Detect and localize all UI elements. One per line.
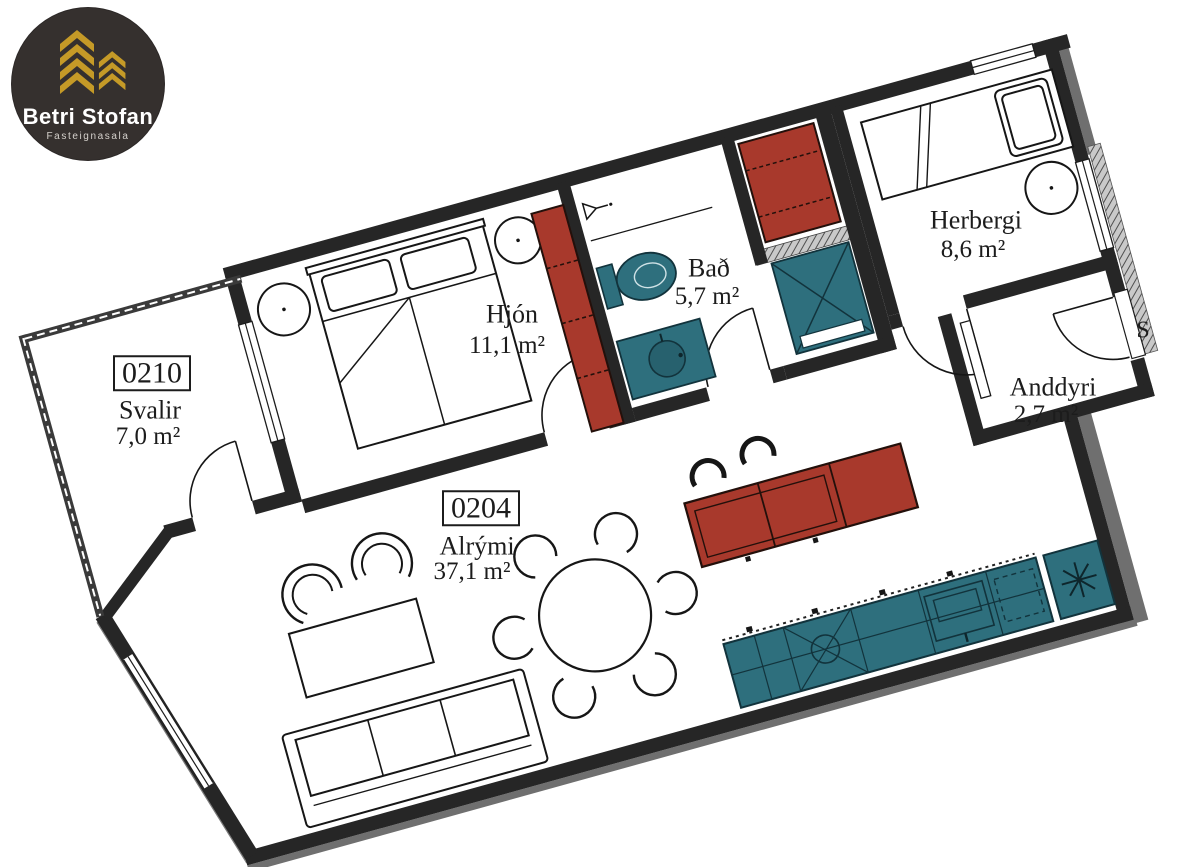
- window-herbergi-top: [971, 44, 1036, 75]
- room-area-herbergi: 8,6 m²: [941, 237, 1005, 263]
- dining-table: [526, 546, 664, 684]
- stairwell-partial-text: S: [1136, 318, 1149, 343]
- window-hjon-left: [239, 321, 285, 442]
- bar-stool: [738, 435, 775, 464]
- dining-chair: [549, 677, 599, 722]
- armchair: [350, 532, 413, 581]
- room-label-svalir: Svalir: [119, 396, 181, 423]
- rotated-plan: [16, 33, 1190, 867]
- unit-label-0210: 0210: [113, 355, 191, 391]
- brand-tagline: Fasteignasala: [46, 131, 129, 142]
- nightstand: [1019, 156, 1083, 220]
- room-area-hjon: 11,1 m²: [469, 333, 545, 359]
- dining-chair: [630, 649, 685, 704]
- room-area-alrymi: 37,1 m²: [434, 559, 511, 585]
- bar-stool: [688, 457, 725, 486]
- brand-name: Betri Stofan: [23, 104, 154, 130]
- window-living-chamfer: [123, 642, 214, 801]
- door-arc-balcony: [176, 441, 252, 517]
- shower-rail-line: [591, 207, 712, 241]
- armchair: [270, 552, 345, 626]
- room-area-svalir: 7,0 m²: [116, 424, 180, 450]
- dining-chair: [656, 567, 702, 617]
- dining-chair: [489, 614, 535, 664]
- room-label-alrymi: Alrými: [439, 532, 514, 559]
- drain-arrow-icon: [583, 196, 615, 219]
- room-label-bad: Bað: [688, 254, 730, 281]
- room-area-anddyri: 2,7 m²: [1014, 402, 1078, 428]
- dining-chair: [592, 509, 642, 554]
- room-label-hjon: Hjón: [486, 300, 538, 327]
- room-area-bad: 5,7 m²: [675, 284, 739, 310]
- agency-logo: Betri Stofan Fasteignasala: [12, 8, 164, 160]
- floorplan-page: { "brand": { "name": "Betri Stofan", "ta…: [0, 0, 1190, 867]
- sink-vanity: [617, 319, 716, 400]
- logo-chevrons-icon: [46, 26, 130, 102]
- room-label-herbergi: Herbergi: [930, 206, 1022, 233]
- room-label-anddyri: Anddyri: [1010, 373, 1097, 400]
- nightstand: [252, 277, 316, 341]
- toilet: [596, 246, 682, 311]
- unit-label-0204: 0204: [442, 490, 520, 526]
